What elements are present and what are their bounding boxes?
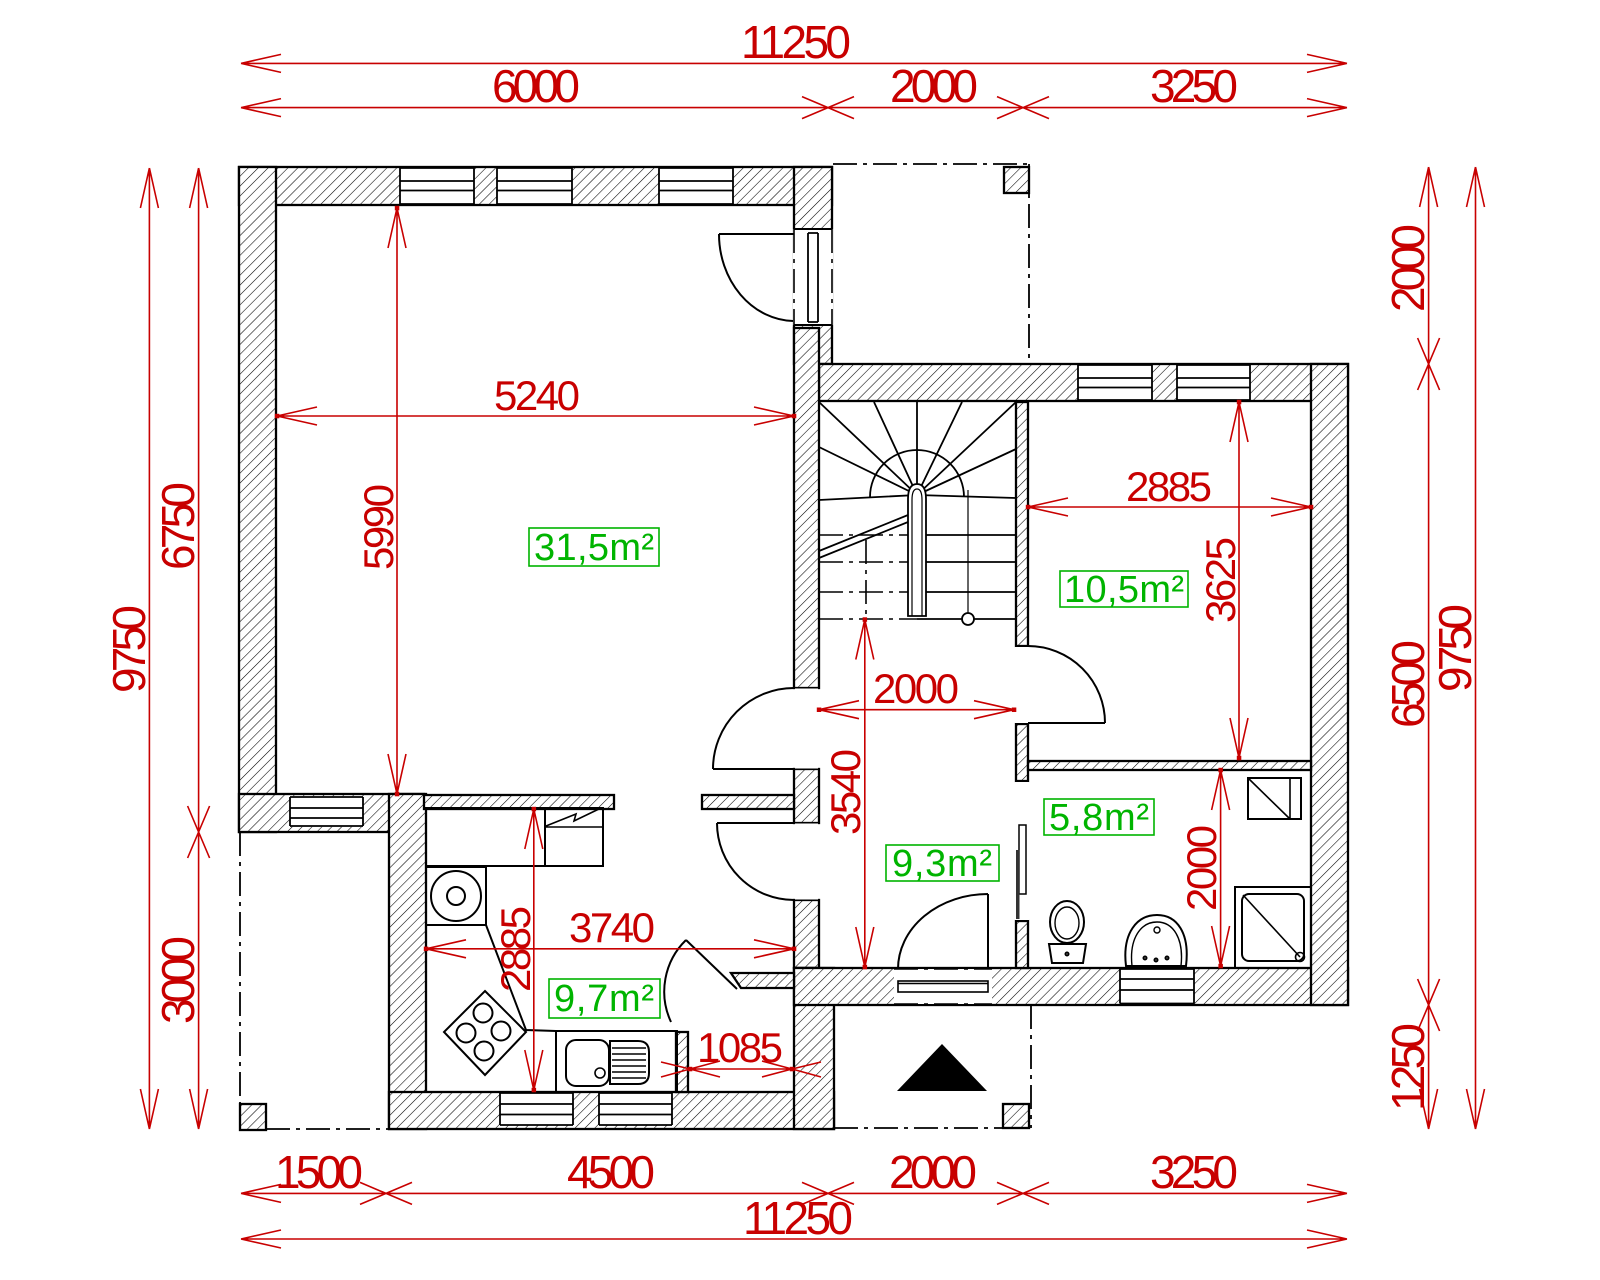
svg-text:5990: 5990 xyxy=(355,484,402,570)
svg-text:6750: 6750 xyxy=(152,482,204,570)
svg-text:2000: 2000 xyxy=(1178,825,1225,911)
svg-text:2000: 2000 xyxy=(889,1146,977,1198)
svg-text:3250: 3250 xyxy=(1150,60,1238,112)
svg-text:31,5m²: 31,5m² xyxy=(534,527,654,569)
svg-text:1085: 1085 xyxy=(697,1024,783,1071)
svg-text:11250: 11250 xyxy=(741,16,851,68)
svg-text:10,5m²: 10,5m² xyxy=(1064,569,1184,611)
svg-text:2000: 2000 xyxy=(890,60,978,112)
svg-text:2000: 2000 xyxy=(1382,224,1434,312)
svg-text:6500: 6500 xyxy=(1382,640,1434,728)
svg-text:3625: 3625 xyxy=(1197,537,1244,623)
svg-text:9750: 9750 xyxy=(1429,604,1481,692)
svg-text:4500: 4500 xyxy=(567,1146,655,1198)
svg-text:3540: 3540 xyxy=(822,749,869,835)
svg-text:2885: 2885 xyxy=(492,906,539,992)
svg-text:5,8m²: 5,8m² xyxy=(1049,797,1149,839)
svg-text:3740: 3740 xyxy=(569,904,655,951)
svg-text:11250: 11250 xyxy=(743,1192,853,1244)
svg-text:1250: 1250 xyxy=(1382,1023,1434,1111)
svg-text:3000: 3000 xyxy=(152,936,204,1024)
svg-text:2885: 2885 xyxy=(1126,463,1212,510)
svg-text:9,3m²: 9,3m² xyxy=(892,843,992,885)
svg-text:1500: 1500 xyxy=(275,1146,363,1198)
svg-text:2000: 2000 xyxy=(873,665,959,712)
svg-text:9,7m²: 9,7m² xyxy=(554,978,654,1020)
svg-text:9750: 9750 xyxy=(103,605,155,693)
svg-text:6000: 6000 xyxy=(492,60,580,112)
svg-text:3250: 3250 xyxy=(1150,1146,1238,1198)
svg-text:5240: 5240 xyxy=(494,372,580,419)
